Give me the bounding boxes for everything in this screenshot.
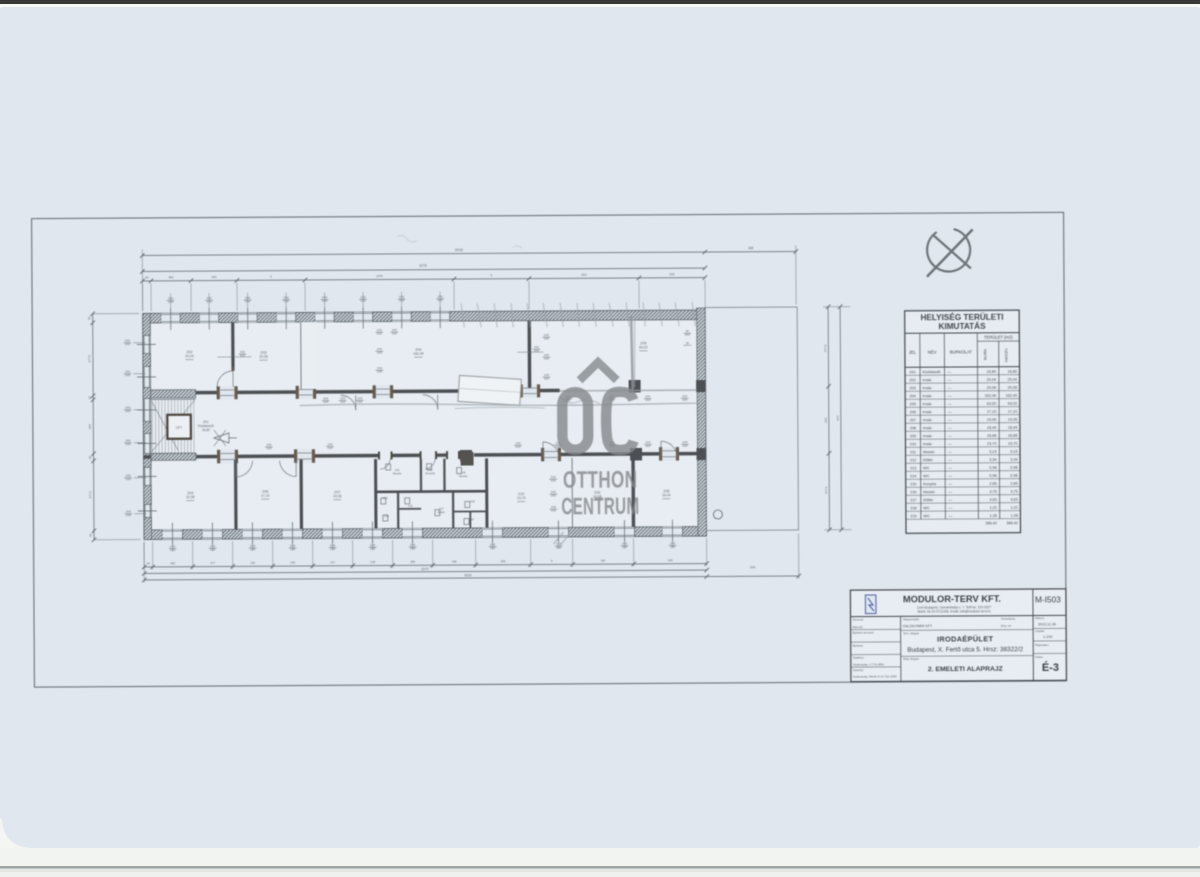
svg-text:LIFT: LIFT [176, 426, 183, 430]
svg-text:BURKOLAT: BURKOLAT [950, 349, 973, 354]
svg-text:0,98: 0,98 [1010, 465, 1017, 469]
svg-text:20,08: 20,08 [259, 355, 268, 359]
svg-text:16,80: 16,80 [202, 428, 210, 432]
svg-text:130: 130 [250, 561, 255, 565]
svg-text:MODULOR-TERV KFT.: MODULOR-TERV KFT. [903, 594, 1001, 605]
svg-text:3,19: 3,19 [1010, 449, 1017, 453]
svg-text:KIMUTATÁS: KIMUTATÁS [939, 321, 987, 331]
svg-text:IRODAÉPÜLET: IRODAÉPÜLET [937, 634, 994, 643]
svg-text:209: 209 [910, 434, 916, 438]
svg-text:162,49: 162,49 [413, 352, 424, 356]
svg-text:Szakmavág. 1-T 01-0851: Szakmavág. 1-T 01-0851 [853, 662, 885, 666]
svg-text:NÉV: NÉV [928, 350, 937, 355]
svg-text:—: — [948, 466, 952, 470]
svg-text:2. EMELETI ALAPRAJZ: 2. EMELETI ALAPRAJZ [928, 666, 1003, 673]
svg-text:230: 230 [669, 272, 674, 276]
svg-text:17,10: 17,10 [261, 494, 270, 498]
svg-text:É-3: É-3 [1042, 661, 1059, 674]
svg-text:2013.11.26: 2013.11.26 [1038, 622, 1056, 626]
svg-text:WC: WC [923, 514, 930, 518]
svg-text:Mérnök: Mérnök [853, 625, 864, 629]
svg-text:17,10: 17,10 [987, 410, 997, 414]
svg-text:—: — [948, 442, 952, 446]
svg-text:215: 215 [910, 482, 916, 486]
svg-text:387: 387 [601, 559, 606, 563]
svg-text:477,5: 477,5 [88, 491, 92, 499]
svg-text:Iroda: Iroda [923, 434, 933, 438]
svg-text:1-100: 1-100 [1043, 635, 1052, 639]
svg-text:BURK: BURK [982, 348, 987, 359]
svg-text:30: 30 [88, 396, 92, 400]
svg-text:Dátum:: Dátum: [1035, 616, 1045, 620]
svg-text:Statikus:: Statikus: [853, 656, 865, 660]
svg-text:16,68: 16,68 [1008, 433, 1018, 437]
svg-text:19,70: 19,70 [1008, 441, 1018, 445]
svg-text:20,08: 20,08 [987, 386, 997, 390]
svg-text:Mosdó: Mosdó [459, 474, 468, 478]
svg-text:162,49: 162,49 [1006, 393, 1018, 397]
svg-text:206: 206 [910, 410, 916, 414]
svg-text:Lépték:: Lépték: [1035, 629, 1045, 633]
svg-text:203: 203 [909, 386, 915, 390]
svg-text:20,04: 20,04 [185, 354, 194, 358]
svg-text:18,44: 18,44 [987, 426, 997, 430]
svg-text:Eng. sz:: Eng. sz: [1001, 624, 1012, 628]
svg-text:477,5: 477,5 [823, 344, 827, 352]
svg-text:CENTRUM: CENTRUM [561, 494, 639, 521]
svg-text:16,68: 16,68 [987, 434, 997, 438]
svg-text:213: 213 [408, 504, 413, 508]
svg-text:128: 128 [370, 560, 375, 564]
svg-text:228: 228 [668, 558, 673, 562]
svg-text:Iroda: Iroda [923, 402, 933, 406]
svg-text:Vezetőpse:: Vezetőpse: [1001, 617, 1016, 621]
svg-text:Megrendelő:: Megrendelő: [903, 617, 920, 621]
svg-text:Előtér: Előtér [923, 498, 934, 502]
svg-text:0,98: 0,98 [989, 474, 996, 478]
svg-text:213: 213 [910, 466, 916, 470]
svg-text:Készítő:: Készítő: [853, 668, 864, 672]
svg-text:30: 30 [88, 456, 92, 460]
svg-text:16,80: 16,80 [987, 370, 997, 374]
svg-text:377: 377 [210, 561, 215, 565]
svg-text:1,22: 1,22 [1010, 505, 1017, 509]
svg-text:—: — [948, 490, 952, 494]
svg-text:590: 590 [501, 559, 506, 563]
svg-text:—: — [948, 426, 952, 430]
svg-text:0,98: 0,98 [989, 466, 996, 470]
svg-text:386,42: 386,42 [985, 521, 997, 525]
svg-text:—: — [948, 394, 952, 398]
svg-text:18,44: 18,44 [662, 493, 671, 497]
svg-text:Iroda: Iroda [923, 378, 933, 382]
svg-text:19,70: 19,70 [517, 496, 526, 500]
svg-text:WC: WC [923, 474, 930, 478]
svg-text:—: — [948, 450, 952, 454]
svg-text:Rajz tárgya:: Rajz tárgya: [903, 657, 919, 661]
svg-text:20,04: 20,04 [1008, 377, 1018, 381]
svg-text:—: — [948, 386, 952, 390]
svg-text:1,28: 1,28 [1011, 513, 1018, 517]
svg-text:202: 202 [909, 378, 915, 382]
svg-text:Iroda: Iroda [923, 442, 933, 446]
svg-text:214: 214 [384, 514, 389, 518]
svg-text:19,06: 19,06 [1008, 417, 1018, 421]
svg-text:—: — [948, 434, 952, 438]
svg-text:1,28: 1,28 [990, 514, 997, 518]
svg-text:Közlekedő: Közlekedő [923, 370, 941, 374]
svg-text:4,63: 4,63 [989, 498, 996, 502]
svg-text:—: — [948, 402, 952, 406]
svg-text:460: 460 [168, 275, 173, 279]
svg-text:17,10: 17,10 [1008, 409, 1018, 413]
svg-text:219: 219 [910, 514, 916, 518]
svg-text:970: 970 [836, 415, 840, 420]
svg-text:219: 219 [469, 517, 474, 521]
svg-text:212: 212 [910, 458, 916, 462]
svg-text:211: 211 [910, 450, 916, 454]
svg-text:40: 40 [147, 561, 151, 565]
svg-text:40: 40 [87, 316, 91, 320]
svg-text:JEL: JEL [909, 350, 917, 355]
svg-text:208: 208 [910, 426, 916, 430]
svg-text:Iroda: Iroda [923, 394, 933, 398]
svg-text:63,02: 63,02 [639, 346, 648, 350]
svg-text:560: 560 [581, 273, 586, 277]
svg-text:Mosdó: Mosdó [393, 471, 402, 475]
svg-text:345: 345 [748, 246, 754, 250]
svg-text:Konyha: Konyha [425, 471, 435, 475]
svg-text:Építész tervező:: Építész tervező: [853, 630, 875, 635]
svg-text:218: 218 [910, 506, 916, 510]
svg-text:214: 214 [910, 474, 916, 478]
svg-text:2,65: 2,65 [1010, 481, 1017, 485]
svg-text:18,44: 18,44 [1008, 425, 1018, 429]
svg-text:3276: 3276 [419, 264, 427, 268]
svg-text:Építész:: Építész: [853, 643, 864, 648]
svg-text:217: 217 [910, 498, 916, 502]
svg-text:63,02: 63,02 [1008, 401, 1018, 405]
svg-text:207: 207 [910, 418, 916, 422]
svg-text:217: 217 [330, 560, 335, 564]
svg-text:Előtér: Előtér [923, 458, 934, 462]
svg-text:—: — [948, 482, 952, 486]
svg-text:KALON-PARK KFT.: KALON-PARK KFT. [903, 624, 933, 628]
svg-text:19,70: 19,70 [987, 442, 997, 446]
svg-text:WC: WC [923, 466, 930, 470]
svg-text:19,06: 19,06 [987, 418, 997, 422]
svg-text:193: 193 [290, 561, 295, 565]
svg-text:—: — [948, 410, 952, 414]
svg-text:4,63: 4,63 [1010, 497, 1017, 501]
svg-text:30: 30 [686, 341, 690, 345]
svg-text:20,08: 20,08 [1008, 385, 1018, 389]
svg-text:210: 210 [910, 442, 916, 446]
svg-text:40: 40 [89, 533, 93, 537]
svg-text:216: 216 [910, 490, 916, 494]
svg-text:218: 218 [470, 499, 475, 503]
svg-text:20,04: 20,04 [987, 378, 997, 382]
svg-text:212: 212 [383, 496, 388, 500]
svg-text:430: 430 [211, 275, 216, 279]
svg-text:3279: 3279 [421, 567, 428, 571]
svg-text:3,34: 3,34 [989, 458, 996, 462]
svg-text:4,75: 4,75 [989, 490, 996, 494]
svg-text:—: — [948, 370, 952, 374]
svg-text:Mobil: 06-20-9712436, Email: i: Mobil: 06-20-9712436, Email: info@modulo… [917, 610, 990, 614]
svg-text:Fázis:: Fázis: [1035, 655, 1043, 659]
svg-text:540: 540 [750, 565, 755, 569]
svg-text:—: — [948, 506, 952, 510]
svg-text:3,34: 3,34 [1010, 457, 1017, 461]
svg-text:477,5: 477,5 [87, 355, 91, 363]
svg-text:3,19: 3,19 [989, 450, 996, 454]
svg-text:M-I503: M-I503 [1035, 594, 1061, 604]
svg-text:16,80: 16,80 [1008, 369, 1018, 373]
svg-text:Iroda: Iroda [923, 410, 933, 414]
svg-text:40: 40 [145, 275, 149, 279]
svg-text:WC: WC [923, 506, 930, 510]
svg-text:386,42: 386,42 [1006, 521, 1018, 525]
svg-text:—: — [948, 378, 952, 382]
svg-text:3018: 3018 [455, 248, 463, 252]
svg-text:TERÜLET (m2): TERÜLET (m2) [984, 335, 1013, 340]
svg-text:385: 385 [410, 560, 415, 564]
svg-text:20,08: 20,08 [186, 495, 195, 499]
svg-text:1370: 1370 [376, 274, 383, 278]
svg-text:427,5: 427,5 [824, 486, 828, 494]
svg-text:390: 390 [88, 424, 92, 429]
svg-text:Mosdó: Mosdó [923, 490, 934, 494]
svg-text:460: 460 [170, 561, 175, 565]
svg-text:OTTHON: OTTHON [563, 467, 638, 494]
svg-text:Mosdó: Mosdó [923, 450, 934, 454]
svg-text:Konyha: Konyha [923, 482, 937, 486]
svg-text:1,22: 1,22 [989, 506, 996, 510]
svg-text:63,02: 63,02 [987, 402, 997, 406]
svg-text:—: — [948, 498, 952, 502]
svg-text:390: 390 [824, 417, 828, 422]
svg-text:Előtér: Előtér [438, 510, 445, 514]
svg-text:3018: 3018 [464, 573, 471, 577]
svg-text:Iroda: Iroda [923, 386, 933, 390]
svg-text:4,75: 4,75 [1010, 489, 1017, 493]
svg-text:—: — [948, 458, 952, 462]
svg-text:201: 201 [909, 370, 915, 374]
svg-text:Rajzszám:: Rajzszám: [1035, 643, 1049, 647]
svg-text:2,65: 2,65 [989, 482, 996, 486]
svg-text:—: — [948, 418, 952, 422]
svg-text:448: 448 [452, 560, 457, 564]
svg-text:204: 204 [909, 394, 915, 398]
svg-text:—: — [948, 514, 952, 518]
svg-text:Tervező:: Tervező: [853, 618, 865, 622]
svg-text:Iroda: Iroda [923, 418, 933, 422]
svg-text:Budapest, X. Fertő utca 5. Hrs: Budapest, X. Fertő utca 5. Hrsz: 38322/2 [907, 646, 1023, 654]
svg-text:162,49: 162,49 [985, 394, 997, 398]
svg-text:HASZN: HASZN [1003, 348, 1008, 362]
svg-text:Szakmavág. Mérök 9 I.E. 011-10: Szakmavág. Mérök 9 I.E. 011-1060 [853, 674, 897, 678]
svg-text:205: 205 [910, 402, 916, 406]
svg-text:HELYISÉG TERÜLETI: HELYISÉG TERÜLETI [920, 312, 1003, 323]
svg-text:19,06: 19,06 [333, 494, 342, 498]
svg-text:Iroda: Iroda [923, 426, 933, 430]
svg-text:—: — [948, 474, 952, 478]
svg-text:Terv. tárgya:: Terv. tárgya: [903, 631, 919, 635]
svg-text:0,98: 0,98 [1010, 473, 1017, 477]
